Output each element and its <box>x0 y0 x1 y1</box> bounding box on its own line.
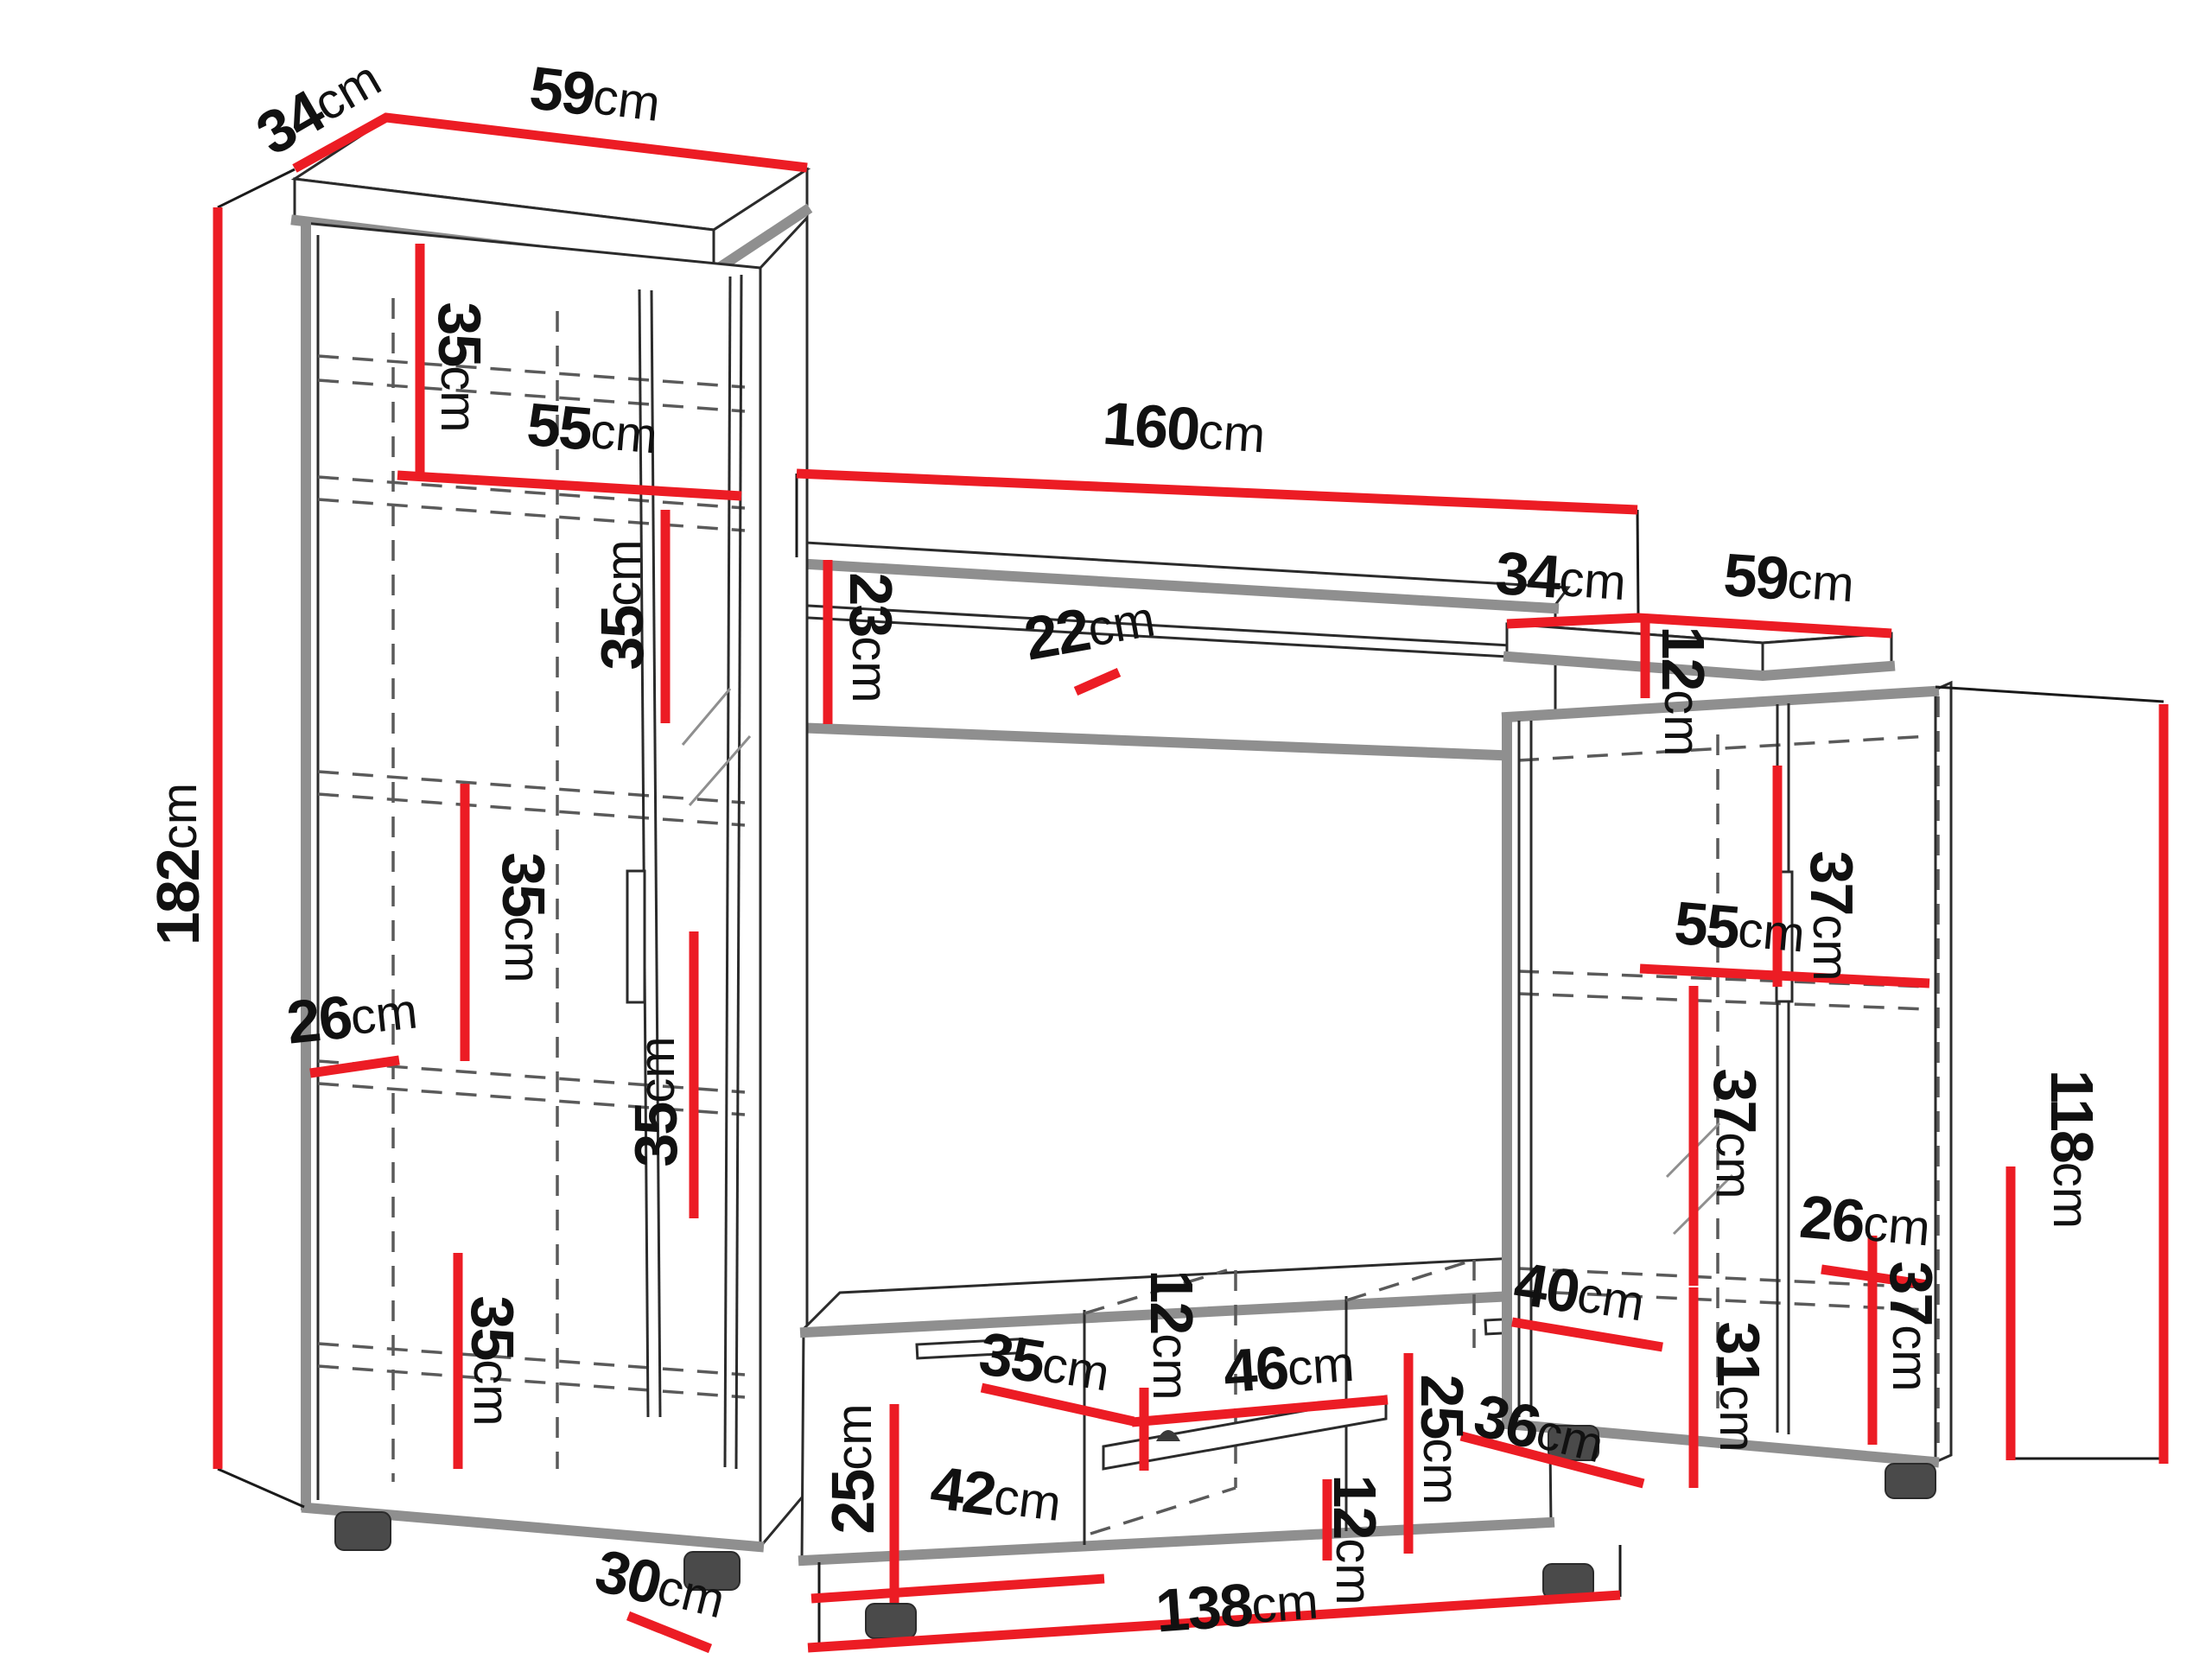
dim-label-right-shelf-2: 37cm <box>1701 1068 1769 1198</box>
dim-label-right-height: 118cm <box>2038 1070 2106 1229</box>
dim-label-stand-gap-bottom: 12cm <box>1321 1474 1389 1605</box>
furniture-dimension-diagram: 34cm59cm35cm55cm35cm182cm35cm26cm35cm35c… <box>0 0 2212 1659</box>
dim-label-right-crown-gap: 12cm <box>1649 626 1717 756</box>
dim-label-right-shelf-1: 37cm <box>1798 850 1866 981</box>
svg-text:12cm: 12cm <box>1138 1269 1205 1400</box>
dim-label-left-height: 182cm <box>144 783 212 945</box>
svg-text:37cm: 37cm <box>1878 1261 1945 1391</box>
right-cabinet-foot <box>1885 1464 1935 1498</box>
left-door-handle <box>627 871 645 1002</box>
svg-text:118cm: 118cm <box>2038 1070 2106 1229</box>
svg-text:35cm: 35cm <box>426 302 493 432</box>
dim-line-shelf-160 <box>797 474 1637 510</box>
svg-text:12cm: 12cm <box>1649 626 1717 756</box>
left-cabinet-foot <box>335 1512 391 1550</box>
dim-label-right-top-width: 59cm <box>1721 541 1856 617</box>
dim-label-left-shelf-3: 35cm <box>490 852 557 982</box>
dim-label-wall-shelf-width: 160cm <box>1101 390 1268 468</box>
dim-label-stand-width: 138cm <box>1154 1567 1320 1645</box>
svg-text:35cm: 35cm <box>622 1036 690 1166</box>
svg-text:34cm: 34cm <box>1493 539 1628 615</box>
left-cabinet-side <box>760 218 807 1547</box>
svg-text:23cm: 23cm <box>837 572 905 702</box>
dim-label-wall-shelf-height: 23cm <box>837 572 905 702</box>
svg-text:31cm: 31cm <box>1705 1321 1772 1452</box>
dim-label-left-shelf-5: 35cm <box>459 1295 526 1426</box>
svg-text:182cm: 182cm <box>144 783 212 945</box>
svg-text:35cm: 35cm <box>490 852 557 982</box>
tv-stand-foot <box>866 1604 916 1638</box>
dim-label-right-top-depth: 34cm <box>1493 539 1628 615</box>
svg-text:59cm: 59cm <box>526 54 664 137</box>
dim-label-stand-door-left-h: 25cm <box>819 1403 887 1534</box>
svg-text:25cm: 25cm <box>1408 1374 1476 1504</box>
svg-text:35cm: 35cm <box>459 1295 526 1426</box>
dim-label-stand-gap-top: 12cm <box>1138 1269 1205 1400</box>
dim-label-left-shelf-2: 35cm <box>588 539 656 670</box>
svg-text:160cm: 160cm <box>1101 390 1268 468</box>
dim-label-stand-door-right-h: 25cm <box>1408 1374 1476 1504</box>
svg-text:12cm: 12cm <box>1321 1474 1389 1605</box>
svg-text:35cm: 35cm <box>588 539 656 670</box>
dim-label-left-shelf-1: 35cm <box>426 302 493 432</box>
dim-label-right-plinth-height: 31cm <box>1705 1321 1772 1452</box>
wall-shelf <box>793 543 1568 757</box>
dim-label-right-shelf-3: 37cm <box>1878 1261 1945 1391</box>
svg-text:59cm: 59cm <box>1721 541 1856 617</box>
svg-text:37cm: 37cm <box>1798 850 1866 981</box>
svg-text:25cm: 25cm <box>819 1403 887 1534</box>
dim-label-left-top-width: 59cm <box>526 54 664 137</box>
svg-text:138cm: 138cm <box>1154 1567 1320 1645</box>
dim-label-left-shelf-4: 35cm <box>622 1036 690 1166</box>
dim-line-stand-42 <box>811 1579 1104 1599</box>
svg-text:37cm: 37cm <box>1701 1068 1769 1198</box>
